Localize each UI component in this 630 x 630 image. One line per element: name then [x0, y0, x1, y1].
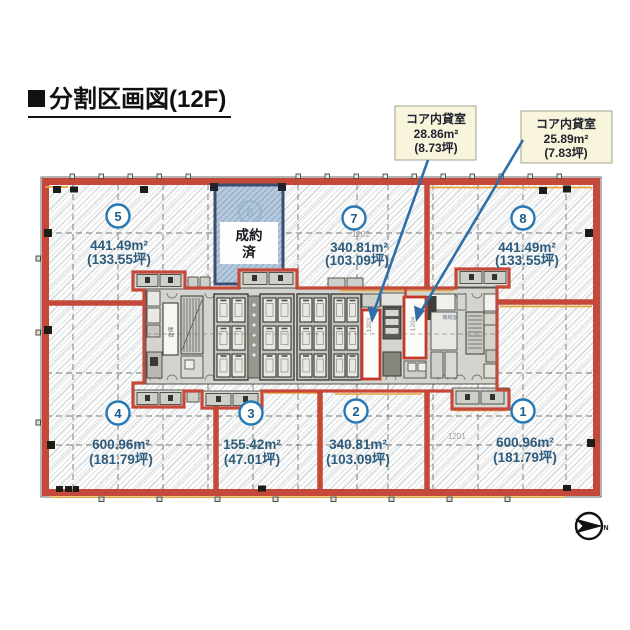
svg-text:8: 8 [519, 211, 526, 226]
svg-text:4: 4 [114, 406, 122, 421]
svg-text:倉庫: 倉庫 [167, 326, 175, 338]
svg-text:済: 済 [242, 244, 256, 260]
svg-text:(7.83坪): (7.83坪) [544, 146, 587, 160]
svg-text:成約: 成約 [236, 227, 263, 243]
svg-text:600.96m²: 600.96m² [496, 435, 554, 450]
svg-text:2: 2 [352, 404, 359, 419]
svg-text:(103.09坪): (103.09坪) [325, 253, 389, 268]
svg-text:1202: 1202 [352, 230, 370, 239]
svg-text:155.42m²: 155.42m² [223, 437, 281, 452]
svg-text:7: 7 [350, 211, 357, 226]
svg-text:6: 6 [246, 205, 253, 220]
svg-text:(8.73坪): (8.73坪) [414, 141, 457, 155]
svg-text:340.81m²: 340.81m² [329, 437, 387, 452]
svg-text:(133.55坪): (133.55坪) [495, 253, 559, 268]
svg-text:N: N [604, 525, 609, 532]
svg-text:(47.01坪): (47.01坪) [224, 452, 280, 467]
svg-text:1201: 1201 [448, 432, 466, 441]
svg-text:5: 5 [114, 209, 121, 224]
svg-text:441.49m²: 441.49m² [90, 238, 148, 253]
svg-text:(103.09坪): (103.09坪) [326, 452, 390, 467]
svg-text:(181.79坪): (181.79坪) [493, 450, 557, 465]
svg-text:28.86m²: 28.86m² [414, 127, 459, 141]
svg-text:機械室: 機械室 [442, 314, 457, 321]
svg-text:1: 1 [519, 404, 526, 419]
svg-text:3: 3 [247, 406, 254, 421]
svg-text:600.96m²: 600.96m² [92, 437, 150, 452]
svg-text:コア内貸室: コア内貸室 [536, 116, 596, 131]
svg-text:(133.55坪): (133.55坪) [87, 252, 151, 267]
svg-text:コア内貸室: コア内貸室 [406, 111, 466, 126]
svg-text:分割区画図(12F): 分割区画図(12F) [49, 85, 226, 113]
svg-text:25.89m²: 25.89m² [544, 132, 589, 146]
svg-text:(181.79坪): (181.79坪) [89, 452, 153, 467]
